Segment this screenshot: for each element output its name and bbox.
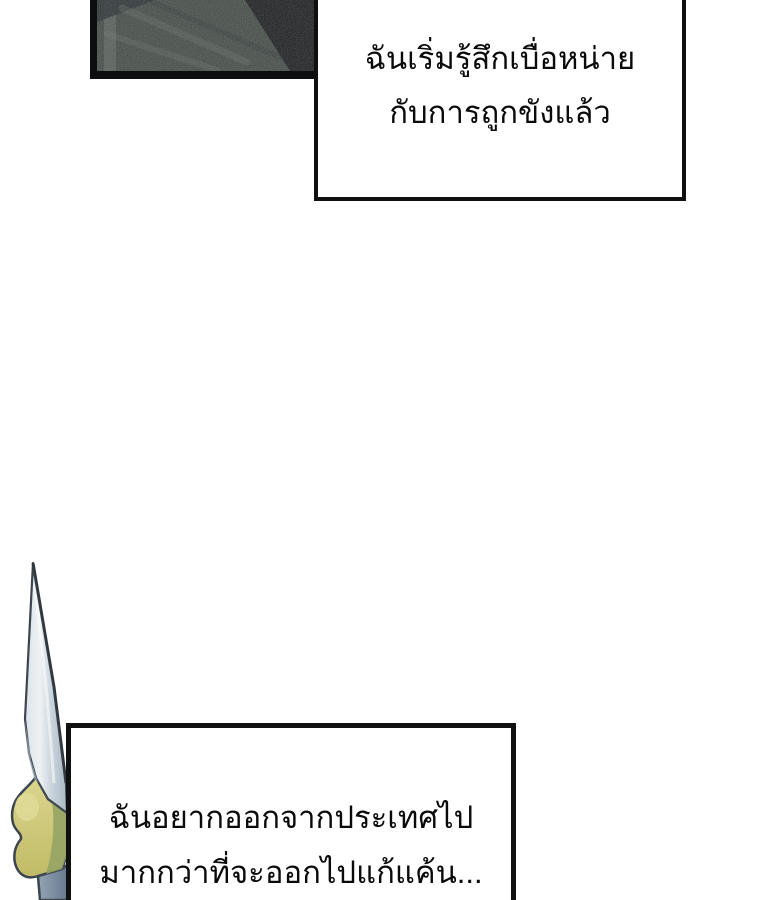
speech-bubble-bottom: ฉันอยากออกจากประเทศไป มากกว่าที่จะออกไปแ… [66,723,516,900]
speech-line: ฉันอยากออกจากประเทศไป [71,790,511,845]
speech-line: มากกว่าที่จะออกไปแก้แค้น... [71,845,511,900]
scene-panel-texture [97,0,317,71]
comic-page: ฉันเริ่มรู้สึกเบื่อหน่าย กับการถูกขังแล้… [0,0,760,900]
speech-line: กับการถูกขังแล้ว [318,86,682,140]
speech-bubble-bottom-text: ฉันอยากออกจากประเทศไป มากกว่าที่จะออกไปแ… [71,790,511,900]
panel-grain [97,0,317,71]
scene-panel [90,0,317,79]
speech-line: ฉันเริ่มรู้สึกเบื่อหน่าย [318,32,682,86]
speech-bubble-top: ฉันเริ่มรู้สึกเบื่อหน่าย กับการถูกขังแล้… [314,0,686,201]
speech-bubble-top-text: ฉันเริ่มรู้สึกเบื่อหน่าย กับการถูกขังแล้… [318,32,682,140]
